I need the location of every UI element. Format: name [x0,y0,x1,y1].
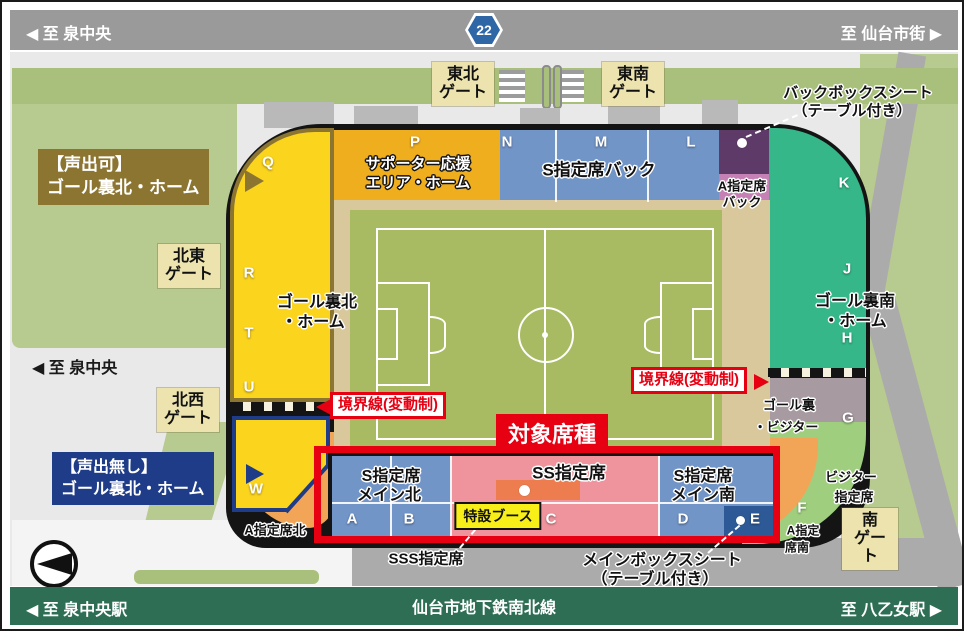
bottom-bar-right: 至 八乙女駅 ▶ [841,596,942,620]
crosswalk-left [499,70,525,102]
boundary-arrow-west [316,399,331,415]
section-letter-u: U [244,379,255,396]
target-banner: 対象席種 [496,414,608,452]
boundary-dashed-line-east [768,368,866,377]
a-north-label: A指定席北 [244,520,305,539]
back-box-marker-dot [737,138,747,148]
goal-ura-visitor-label-line1: ゴール裏 [763,395,815,414]
gate-minami-line1: 南 [848,512,892,530]
gate-hokuto[interactable]: 北東 ゲート [158,244,220,288]
sss-shitei-label: SSS指定席 [388,548,463,569]
top-bar-right: 至 仙台市街 ▶ [841,20,942,44]
bottom-bar-center: 仙台市地下鉄南北線 [412,594,556,618]
section-letter-t: T [244,325,253,342]
voice-no-legend: 【声出無し】 ゴール裏北・ホーム [52,452,214,505]
top-road-bar: ◀ 至 泉中央 22 至 仙台市街 ▶ [10,10,958,50]
bottom-bar-right-text: 至 八乙女駅 [841,602,925,619]
pitch-center-spot [542,332,548,338]
arrow-right-icon: ▶ [930,602,942,619]
section-letter-c: C [546,511,557,528]
mid-left-road-label: ◀ 至 泉中央 [32,354,117,378]
section-letter-h: H [842,330,853,347]
entrance-pillar [553,65,562,109]
gate-tonan-line2: ゲート [608,84,658,102]
visitor-shitei-label-line1: ビジター [825,467,877,486]
gate-tohoku-line2: ゲート [438,84,488,102]
section-letter-l: L [686,134,695,151]
section-back-box-seat[interactable] [719,130,769,174]
voice-ok-legend: 【声出可】 ゴール裏北・ホーム [38,149,209,205]
a-south-label-line2: 席南 [785,539,809,556]
back-box-seat-label-line2: （テーブル付き） [792,100,911,121]
gate-hokuto-line1: 北東 [164,248,214,266]
park-left [12,82,237,348]
section-letter-n: N [502,134,513,151]
top-bar-left: ◀ 至 泉中央 [26,20,111,44]
goal-ura-north-label-line2: ・ホーム [281,308,345,332]
arrow-left-icon: ◀ [26,602,38,619]
gate-hokuto-line2: ゲート [164,266,214,284]
section-letter-a: A [347,511,358,528]
section-letter-k: K [839,175,850,192]
building [702,100,738,126]
supporter-area-label-line2: エリア・ホーム [366,172,471,193]
bottom-bar-left: ◀ 至 泉中央駅 [26,596,127,620]
section-letter-b: B [404,511,415,528]
voice-no-pointer [246,464,264,484]
voice-ok-line2: ゴール裏北・ホーム [47,177,200,200]
green-strip-bottom [134,570,319,584]
gate-minami[interactable]: 南 ゲート [842,508,898,570]
voice-ok-line1: 【声出可】 [47,154,200,177]
section-letter-q: Q [262,154,274,171]
goal-area-left [376,308,398,360]
tokusetsu-booth-label: 特設ブース [454,502,541,530]
penalty-arc-left [430,316,446,354]
bottom-bar-left-text: 至 泉中央駅 [43,602,127,619]
section-letter-p: P [410,134,420,151]
gate-hokusei-line1: 北西 [163,392,213,410]
top-bar-right-text: 至 仙台市街 [841,26,925,43]
boundary-arrow-east [754,374,769,390]
gate-tonan-line1: 東南 [608,66,658,84]
goal-ura-visitor-label-line2: ・ビジター [754,417,819,436]
goal-area-right [692,308,714,360]
section-letter-f: F [797,500,806,517]
s-main-south-label-line2: メイン南 [671,481,735,505]
bottom-subway-bar: ◀ 至 泉中央駅 仙台市地下鉄南北線 至 八乙女駅 ▶ [10,587,958,625]
main-box-marker-dot [736,516,745,525]
gate-minami-line2: ゲート [848,530,892,566]
entrance-pillar [542,65,551,109]
section-letter-d: D [678,511,689,528]
voice-ok-pointer [245,170,264,192]
arrow-left-icon: ◀ [32,360,44,377]
supporter-area-label-line1: サポーター応援 [365,153,470,174]
gate-hokusei-line2: ゲート [163,410,213,428]
a-south-label-line1: A指定 [787,522,820,539]
arrow-left-icon: ◀ [26,26,38,43]
booth-marker-dot [519,485,530,496]
section-letter-m: M [595,134,608,151]
section-letter-j: J [843,261,851,278]
route-number: 22 [476,22,492,38]
boundary-label-east: 境界線(変動制) [631,367,747,394]
compass [30,540,78,588]
compass-north-icon [37,553,72,575]
s-back-label: S指定席バック [542,156,655,181]
section-letter-r: R [244,265,255,282]
a-back-label-line2: バック [722,192,761,211]
ss-shitei-label: SS指定席 [532,459,606,484]
visitor-shitei-label-line2: 指定席 [834,487,873,506]
mid-left-road-text: 至 泉中央 [49,360,117,377]
building [608,104,660,126]
main-box-seat-label-line2: （テーブル付き） [591,565,718,589]
stadium-map: 対象席種 境界線(変動制) 境界線(変動制) P N M L K Q R T U… [0,0,964,631]
top-bar-left-text: 至 泉中央 [43,26,111,43]
gate-hokusei[interactable]: 北西 ゲート [157,388,219,432]
voice-no-line2: ゴール裏北・ホーム [61,479,205,501]
boundary-label-west: 境界線(変動制) [330,392,446,419]
voice-no-line1: 【声出無し】 [61,457,205,479]
section-letter-g: G [842,410,854,427]
gate-tohoku-line1: 東北 [438,66,488,84]
gate-tonan[interactable]: 東南 ゲート [602,62,664,106]
s-main-north-label-line2: メイン北 [357,481,421,505]
route-badge: 22 [465,13,503,47]
penalty-arc-right [644,316,660,354]
goal-ura-south-label-line2: ・ホーム [823,307,887,331]
section-letter-e: E [750,511,760,528]
gate-tohoku[interactable]: 東北 ゲート [432,62,494,106]
arrow-right-icon: ▶ [930,26,942,43]
